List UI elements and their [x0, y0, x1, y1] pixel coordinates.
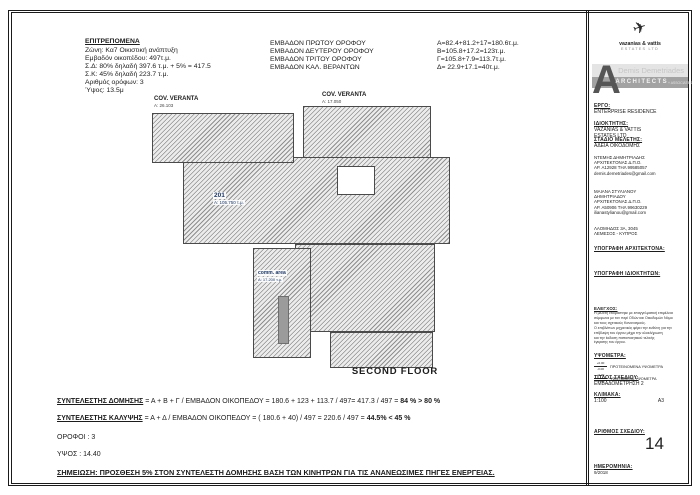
permitted-line: Ζώνη: Κα7 Οικιστική ανάπτυξη	[85, 47, 178, 54]
drawing-sheet: ΕΠΙΤΡΕΠΟΜΕΝΑ Ζώνη: Κα7 Οικιστική ανάπτυξ…	[0, 0, 700, 495]
address-section: ΛΑΟΜΗΔΟΣ 3Α, 3045 ΛΕΜΕΣΟΣ - ΚΥΠΡΟΣ	[594, 226, 686, 236]
area-row-value: Γ=105.8+7.9=113.7τ.μ.	[437, 56, 506, 63]
permitted-line: Σ.Κ: 45% δηλαδή 223.7 τ.μ.	[85, 71, 168, 78]
building-coefficient-head: ΣΥΝΤΕΛΕΣΤΗΣ ΔΟΜΗΣΗΣ	[57, 398, 143, 405]
veranta-top-label: COV. VERANTA	[322, 92, 366, 98]
veranta-left-area: A: 26.103	[154, 103, 173, 108]
company-logo: ✈ vazanias & vattis ESTATES LTD	[596, 20, 684, 51]
coverage-coefficient-result: 44.5% < 45 %	[367, 415, 411, 422]
levels-row-proposed: +0.00 -0.00 ΠΡΟΤΕΙΝΟΜΕΝΑ ΥΨΟΜΕΤΡΑ	[594, 362, 686, 371]
plan-area-veranta-top	[303, 106, 431, 158]
address-line2: ΛΕΜΕΣΟΣ - ΚΥΠΡΟΣ	[594, 231, 686, 236]
plan-void-notch	[337, 166, 375, 195]
plan-area-lower	[295, 244, 435, 332]
floors-line: ΟΡΟΦΟΙ : 3	[57, 434, 95, 441]
plan-area-bottom	[330, 332, 433, 368]
titleblock-separator	[586, 11, 589, 485]
architect2-section: ΜΑΙΑΝΑ ΣΤΥΛΙΑΝΟΥ ΔΗΜΗΤΡΙΑΔΟΥ ΑΡΧΙΤΕΚΤΟΝΑ…	[594, 189, 686, 215]
stage-value: ΑΔΕΙΑ ΟΙΚΟΔΟΜΗΣ	[594, 143, 686, 149]
plan-area-veranta-left	[152, 113, 294, 163]
permitted-line: Αριθμός ορόφων: 3	[85, 79, 144, 86]
architects-principal-name: Demis Demetriades	[612, 66, 684, 75]
permitted-line: Εμβαδόν οικοπέδου: 497τ.μ.	[85, 55, 171, 62]
paper-size: A3	[658, 398, 664, 404]
building-coefficient-result: 84 % > 80 %	[400, 398, 440, 405]
common-area-value: A: 17.200 τ.μ.	[257, 277, 283, 282]
area-row-value: Δ= 22.9+17.1=40τ.μ.	[437, 64, 500, 71]
building-coefficient-line: ΣΥΝΤΕΛΕΣΤΗΣ ΔΟΜΗΣΗΣ = Α + Β + Γ / ΕΜΒΑΔΟ…	[57, 398, 440, 405]
permitted-title: ΕΠΙΤΡΕΠΟΜΕΝΑ	[85, 38, 140, 45]
architects-associates: + ASSOCIATES	[668, 81, 692, 85]
plan-stair-core	[278, 296, 289, 344]
unit-area-label: A: 105.750 τ.μ.	[213, 200, 245, 205]
area-row-value: Β=105.8+17.2=123τ.μ.	[437, 48, 505, 55]
area-row-label: ΕΜΒΑΔΟΝ ΔΕΥΤΕΡΟΥ ΟΡΟΦΟΥ	[270, 48, 374, 55]
area-row-label: ΕΜΒΑΔΟΝ ΚΑΛ. ΒΕΡΑΝΤΩΝ	[270, 64, 360, 71]
check-line: έγκρισης του έργου.	[594, 340, 686, 345]
date-value: 9/2018	[594, 470, 686, 475]
building-coefficient-body: = Α + Β + Γ / ΕΜΒΑΔΟΝ ΟΙΚΟΠΕΔΟΥ = 180.6 …	[143, 398, 400, 405]
levels-proposed-label: ΠΡΟΤΕΙΝΟΜΕΝΑ ΥΨΟΜΕΤΡΑ	[610, 365, 663, 369]
permitted-line: Ύψος: 13.5μ	[85, 87, 124, 94]
signature-owner-label: ΥΠΟΓΡΑΦΗ ΙΔΙΟΚΤΗΤΩΝ:	[594, 271, 686, 277]
project-value: ENTERPRISE RESIDENCE	[594, 109, 686, 115]
floor-caption: SECOND FLOOR	[340, 366, 450, 377]
permitted-line: Σ.Δ: 80% δηλαδή 397.6 τ.μ. + 5% = 417.5	[85, 63, 211, 70]
veranta-top-area: A: 17.050	[322, 99, 341, 104]
check-section: ΕΛΕΓΧΟΣ: Η μελέτη ετοιμάστηκε με επαγγελ…	[594, 306, 686, 345]
veranta-left-label: COV. VERANTA	[154, 96, 198, 102]
architect2-email: ilianastylianou@gmail.com	[594, 210, 686, 215]
benchmark-icon: +0.00 -0.00	[594, 362, 607, 371]
coverage-coefficient-head: ΣΥΝΤΕΛΕΣΤΗΣ ΚΑΛΥΨΗΣ	[57, 415, 143, 422]
date-section: ΗΜΕΡΟΜΗΝΙΑ: 9/2018	[594, 464, 686, 475]
drawing-number-value: 14	[645, 434, 664, 454]
architects-word: ARCHITECTS	[608, 79, 668, 85]
stage-section: ΣΤΑΔΙΟ ΜΕΛΕΤΗΣ: ΑΔΕΙΑ ΟΙΚΟΔΟΜΗΣ	[594, 137, 686, 149]
common-area-label: comm. area	[257, 270, 287, 276]
scale-section: ΚΛΙΜΑΚΑ: 1:100 A3	[594, 392, 686, 404]
coverage-coefficient-line: ΣΥΝΤΕΛΕΣΤΗΣ ΚΑΛΥΨΗΣ = Α + Δ / ΕΜΒΑΔΟΝ ΟΙ…	[57, 415, 410, 422]
height-line: ΥΨΟΣ : 14.40	[57, 451, 101, 458]
area-row-label: ΕΜΒΑΔΟΝ ΠΡΩΤΟΥ ΟΡΟΦΟΥ	[270, 40, 366, 47]
scale-value: 1:100	[594, 398, 607, 404]
project-section: ΕΡΓΟ: ENTERPRISE RESIDENCE	[594, 103, 686, 115]
coverage-coefficient-body: = Α + Δ / ΕΜΒΑΔΟΝ ΟΙΚΟΠΕΔΟΥ = ( 180.6 + …	[143, 415, 367, 422]
drawing-title-section: ΤΙΤΛΟΣ ΣΧΕΔΙΟΥ: ΕΜΒΑΔΟΜΕΤΡΗΣΗ 2	[594, 375, 686, 387]
area-row-value: Α=82.4+81.2+17=180.6τ.μ.	[437, 40, 519, 47]
architect1-section: ΝΤΕΜΗΣ ΔΗΜΗΤΡΙΑΔΗΣ ΑΡΧΙΤΕΚΤΟΝΑΣ Δ.Π.Ο. Α…	[594, 155, 686, 176]
note-line: ΣΗΜΕΙΩΣΗ: ΠΡΟΣΘΕΣΗ 5% ΣΤΟΝ ΣΥΝΤΕΛΕΣΤΗ ΔΟ…	[57, 468, 495, 477]
drawing-number-label: ΑΡΙΘΜΟΣ ΣΧΕΔΙΟΥ:	[594, 429, 686, 435]
architect1-email: demis.demetriades@gmail.com	[594, 171, 686, 176]
area-row-label: ΕΜΒΑΔΟΝ ΤΡΙΤΟΥ ΟΡΟΦΟΥ	[270, 56, 362, 63]
level-plus-value: +0.00	[594, 362, 607, 365]
level-minus-value: -0.00	[594, 368, 607, 371]
drawing-title-value: ΕΜΒΑΔΟΜΕΤΡΗΣΗ 2	[594, 381, 686, 387]
signature-architect-label: ΥΠΟΓΡΑΦΗ ΑΡΧΙΤΕΚΤΟΝΑ:	[594, 246, 686, 252]
unit-number-label: 201	[213, 192, 226, 199]
